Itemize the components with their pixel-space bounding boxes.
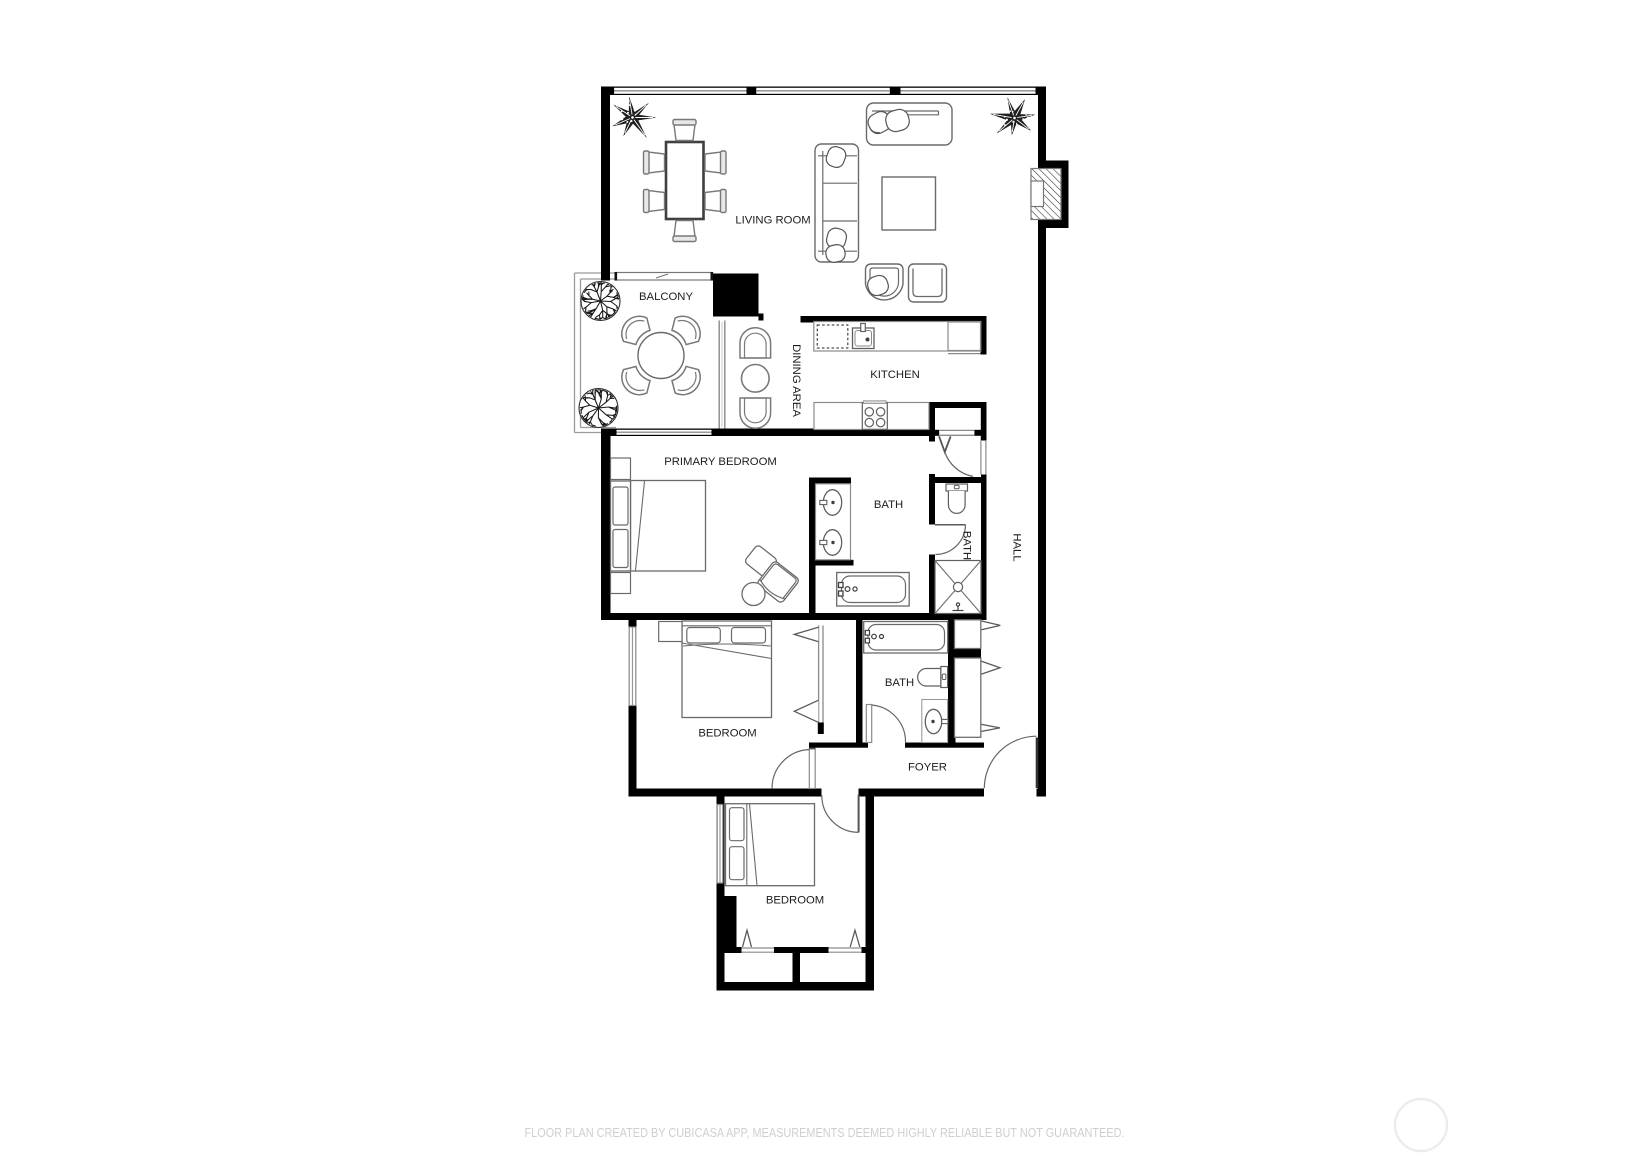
svg-text:FLOOR PLAN CREATED BY CUBICASA: FLOOR PLAN CREATED BY CUBICASA APP, MEAS… <box>525 1125 1125 1140</box>
svg-text:FOYER: FOYER <box>908 762 947 774</box>
svg-text:BEDROOM: BEDROOM <box>766 895 824 907</box>
svg-text:BEDROOM: BEDROOM <box>698 728 756 740</box>
svg-text:LIVING ROOM: LIVING ROOM <box>735 215 810 227</box>
svg-text:PRIMARY BEDROOM: PRIMARY BEDROOM <box>664 456 777 468</box>
svg-text:BALCONY: BALCONY <box>639 291 693 303</box>
svg-text:HALL: HALL <box>1011 533 1023 561</box>
svg-text:DINING AREA: DINING AREA <box>790 344 802 417</box>
svg-text:BATH: BATH <box>885 677 914 689</box>
svg-text:BATH: BATH <box>961 531 973 560</box>
svg-text:BATH: BATH <box>874 499 903 511</box>
svg-text:KITCHEN: KITCHEN <box>870 369 920 381</box>
